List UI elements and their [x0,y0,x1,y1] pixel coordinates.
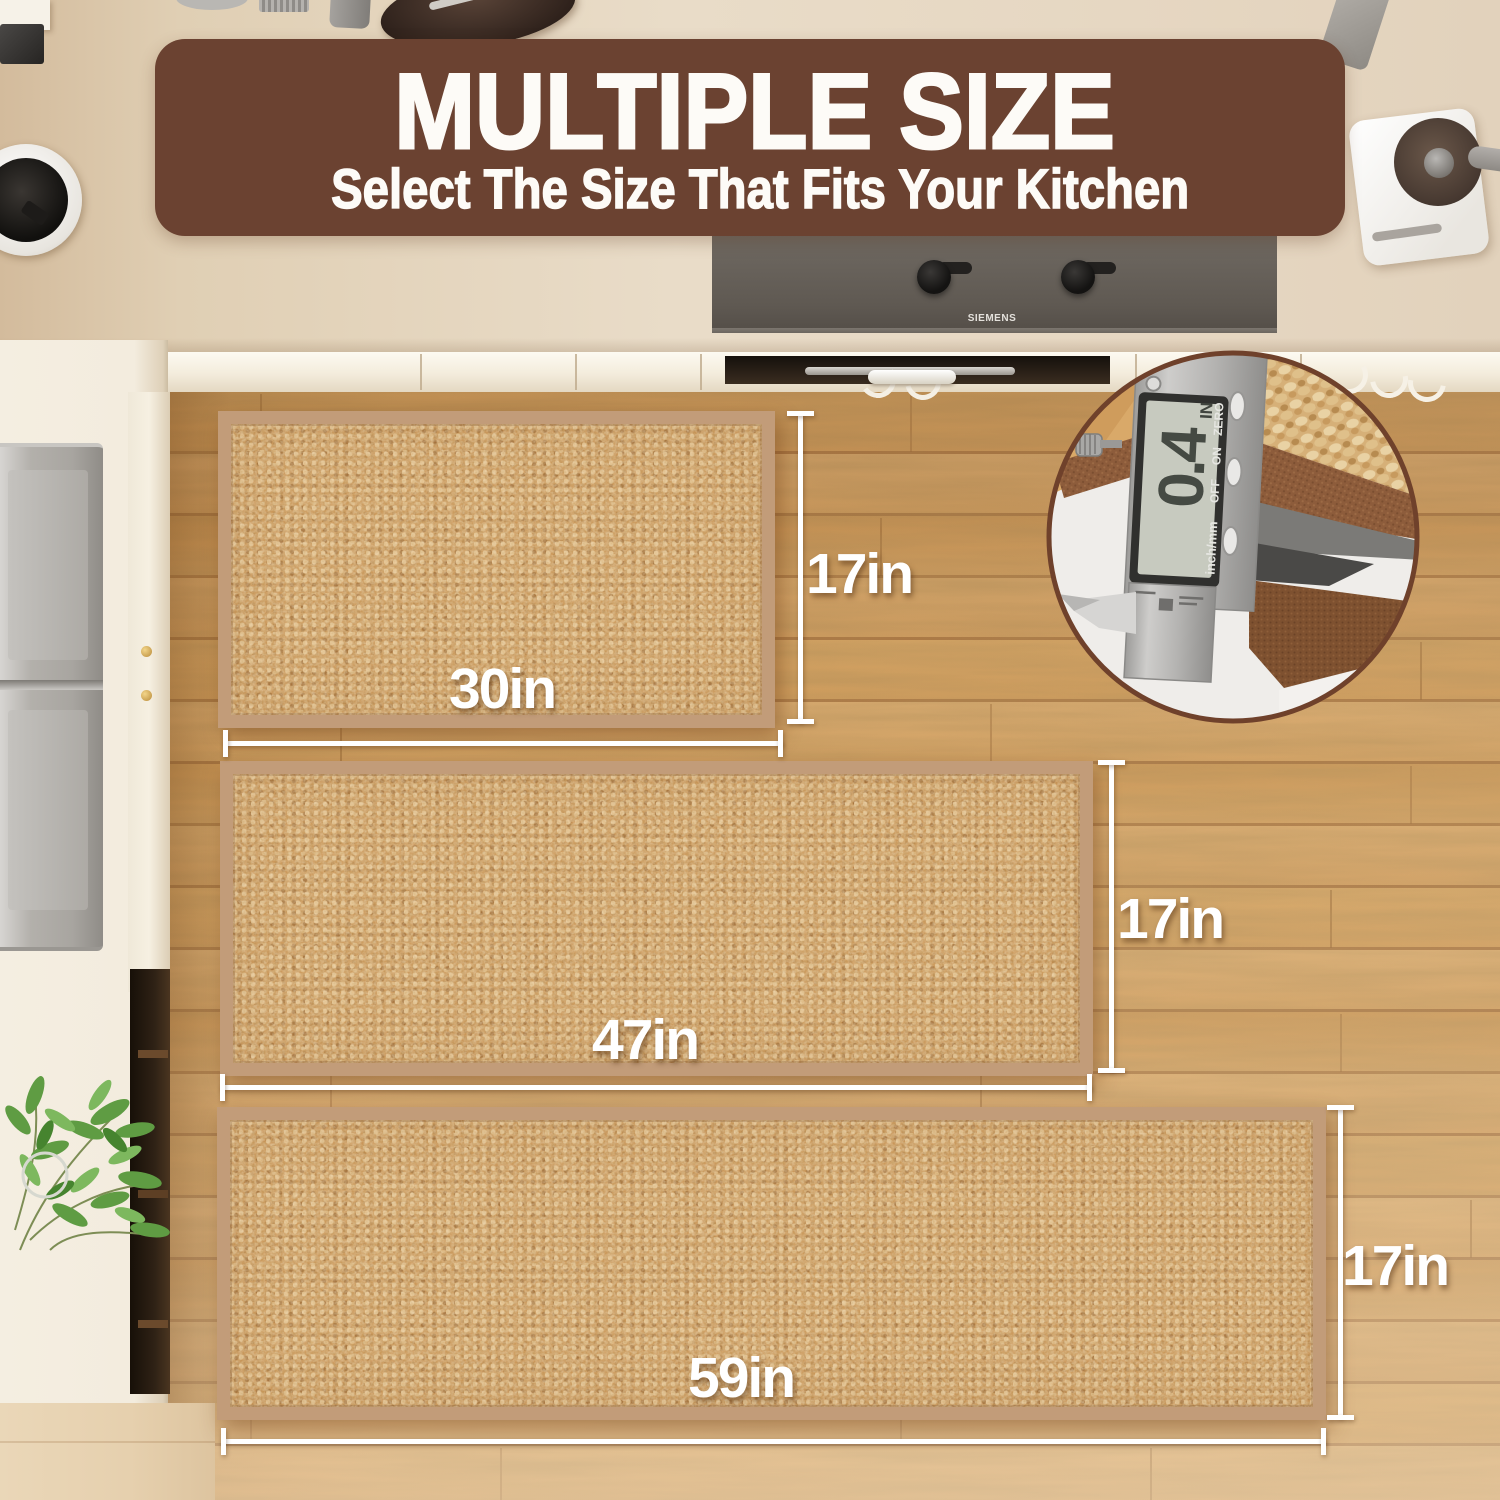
svg-text:ZERO: ZERO [1211,402,1227,436]
svg-text:ON: ON [1209,447,1224,466]
svg-text:inch/mm: inch/mm [1203,521,1221,575]
svg-text:OFF: OFF [1207,479,1222,504]
